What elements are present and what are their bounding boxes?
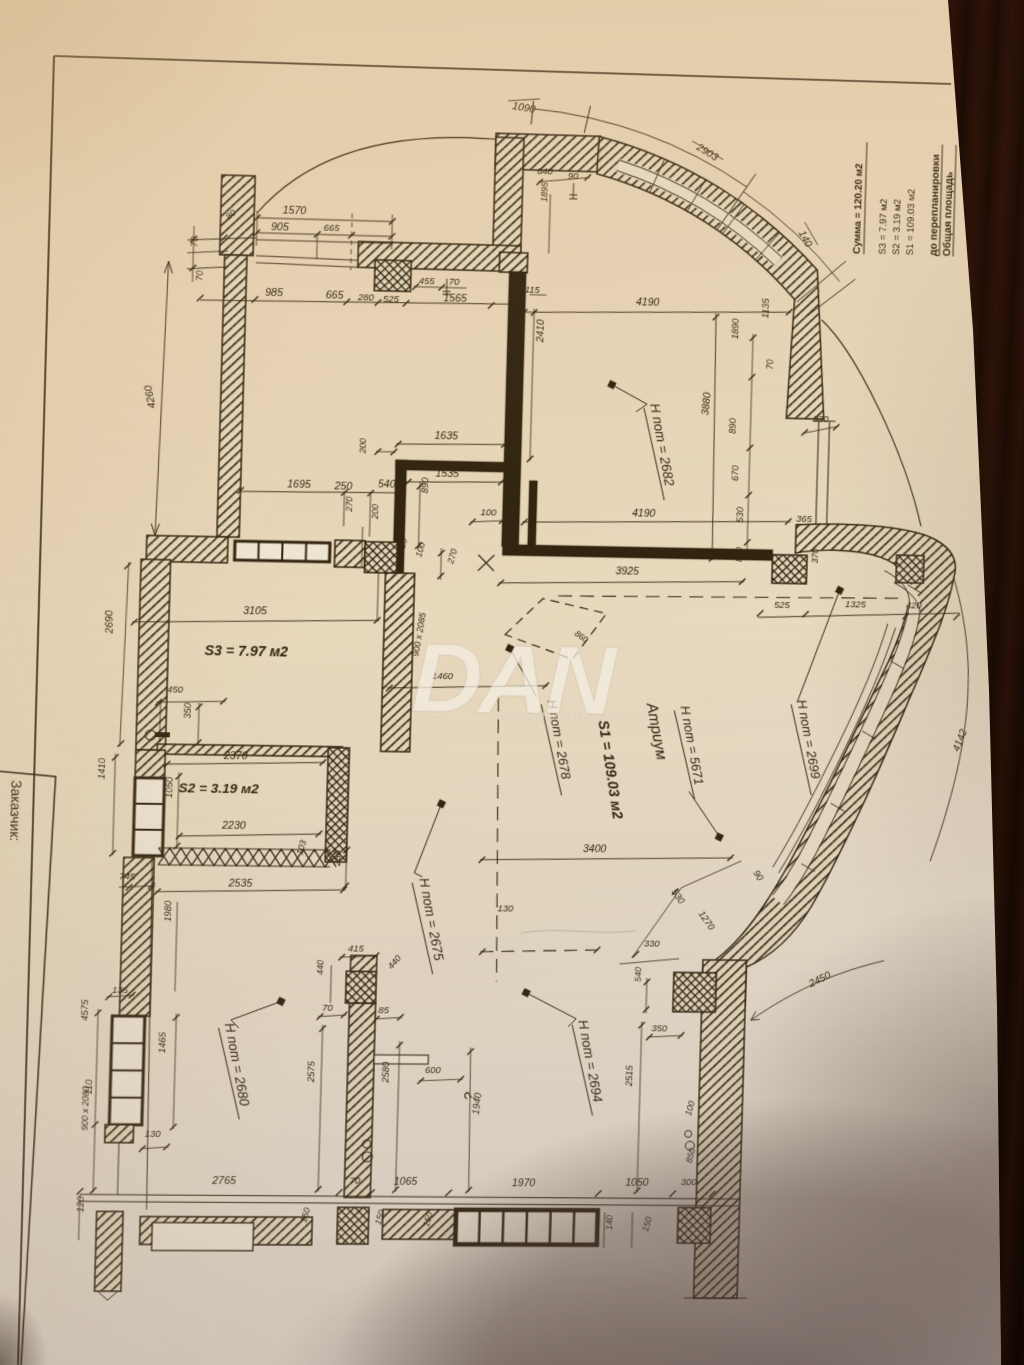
svg-text:270: 270 bbox=[445, 548, 459, 566]
svg-text:420: 420 bbox=[906, 601, 922, 612]
svg-text:S1 = 109.03 м2: S1 = 109.03 м2 bbox=[905, 188, 918, 255]
svg-text:70: 70 bbox=[190, 236, 201, 247]
svg-text:1065: 1065 bbox=[394, 1176, 418, 1188]
svg-text:1050: 1050 bbox=[164, 776, 176, 798]
svg-text:250: 250 bbox=[333, 481, 352, 493]
svg-text:890: 890 bbox=[420, 477, 431, 494]
svg-text:100: 100 bbox=[414, 541, 428, 558]
svg-text:120: 120 bbox=[75, 1196, 87, 1212]
svg-text:4575: 4575 bbox=[80, 999, 92, 1021]
svg-text:1270: 1270 bbox=[696, 909, 717, 933]
svg-text:S3 = 7.97 м2: S3 = 7.97 м2 bbox=[204, 643, 288, 660]
svg-text:4142: 4142 bbox=[951, 728, 970, 754]
svg-text:2450: 2450 bbox=[806, 969, 833, 990]
svg-text:265: 265 bbox=[332, 850, 343, 867]
svg-text:1940: 1940 bbox=[471, 1092, 484, 1115]
svg-text:745: 745 bbox=[119, 871, 136, 882]
svg-text:140: 140 bbox=[796, 229, 815, 250]
svg-text:200: 200 bbox=[370, 504, 380, 520]
svg-text:1465: 1465 bbox=[157, 1032, 169, 1054]
svg-text:440: 440 bbox=[315, 960, 325, 975]
svg-text:365: 365 bbox=[796, 514, 813, 525]
svg-text:Н пот = 2680: Н пот = 2680 bbox=[222, 1021, 252, 1107]
svg-text:1570: 1570 bbox=[282, 205, 306, 217]
svg-text:130: 130 bbox=[497, 904, 514, 915]
svg-text:540: 540 bbox=[633, 967, 643, 982]
svg-text:1535: 1535 bbox=[435, 468, 459, 480]
svg-text:115: 115 bbox=[525, 285, 541, 296]
svg-text:900 х 2080: 900 х 2080 bbox=[80, 1086, 91, 1130]
svg-text:S2 = 3.19 м2: S2 = 3.19 м2 bbox=[178, 780, 259, 796]
svg-text:540: 540 bbox=[378, 479, 396, 491]
svg-text:350: 350 bbox=[183, 702, 194, 719]
svg-text:330: 330 bbox=[813, 414, 830, 425]
svg-text:2370: 2370 bbox=[223, 750, 248, 762]
svg-text:1980: 1980 bbox=[163, 900, 175, 922]
svg-text:2410: 2410 bbox=[534, 319, 546, 343]
svg-text:2580: 2580 bbox=[381, 1061, 393, 1084]
svg-text:640: 640 bbox=[537, 166, 554, 177]
svg-text:1695: 1695 bbox=[287, 479, 311, 491]
svg-text:85: 85 bbox=[378, 1005, 390, 1016]
svg-text:1635: 1635 bbox=[434, 430, 458, 442]
svg-text:440: 440 bbox=[386, 953, 403, 971]
svg-text:2515: 2515 bbox=[624, 1065, 635, 1087]
svg-text:525: 525 bbox=[383, 294, 400, 305]
svg-text:530: 530 bbox=[669, 887, 687, 906]
svg-text:1895: 1895 bbox=[539, 181, 549, 202]
svg-text:2765: 2765 bbox=[211, 1175, 236, 1187]
svg-text:150: 150 bbox=[640, 1216, 654, 1233]
svg-text:665: 665 bbox=[323, 223, 340, 234]
svg-text:2690: 2690 bbox=[103, 610, 115, 635]
svg-text:130: 130 bbox=[144, 1129, 161, 1140]
svg-text:330: 330 bbox=[644, 939, 661, 950]
svg-text:4190: 4190 bbox=[636, 296, 660, 308]
svg-text:820: 820 bbox=[734, 547, 744, 562]
svg-text:2230: 2230 bbox=[221, 820, 246, 832]
svg-text:455: 455 bbox=[419, 276, 436, 287]
svg-text:4260: 4260 bbox=[142, 384, 158, 409]
svg-text:350: 350 bbox=[651, 1023, 668, 1034]
svg-text:3105: 3105 bbox=[243, 605, 267, 617]
svg-text:415: 415 bbox=[348, 944, 365, 955]
svg-text:90: 90 bbox=[568, 171, 579, 182]
svg-text:1970: 1970 bbox=[512, 1177, 536, 1189]
svg-text:S2 = 3.19 м2: S2 = 3.19 м2 bbox=[891, 198, 903, 255]
svg-text:665: 665 bbox=[326, 289, 344, 301]
svg-text:530: 530 bbox=[735, 506, 746, 522]
svg-text:200: 200 bbox=[358, 438, 368, 454]
svg-text:4190: 4190 bbox=[632, 508, 656, 520]
svg-text:985: 985 bbox=[265, 287, 283, 299]
svg-text:90: 90 bbox=[750, 869, 765, 884]
svg-text:1325: 1325 bbox=[845, 599, 867, 610]
svg-text:600: 600 bbox=[425, 1065, 442, 1076]
svg-text:70: 70 bbox=[765, 359, 776, 370]
svg-text:70: 70 bbox=[349, 1176, 361, 1187]
svg-text:280: 280 bbox=[357, 292, 375, 303]
svg-text:2535: 2535 bbox=[227, 878, 252, 890]
svg-text:450: 450 bbox=[167, 685, 184, 696]
svg-text:100: 100 bbox=[480, 507, 497, 518]
svg-text:905: 905 bbox=[271, 221, 289, 233]
svg-text:3925: 3925 bbox=[615, 566, 639, 578]
svg-text:2575: 2575 bbox=[306, 1060, 318, 1083]
svg-text:S3 = 7.97 м2: S3 = 7.97 м2 bbox=[878, 198, 890, 255]
svg-text:3400: 3400 bbox=[583, 843, 607, 855]
svg-text:1410: 1410 bbox=[96, 757, 108, 779]
svg-text:1135: 1135 bbox=[761, 298, 772, 319]
svg-text:1890: 1890 bbox=[730, 318, 741, 340]
svg-text:100: 100 bbox=[683, 1100, 697, 1117]
svg-text:525: 525 bbox=[774, 600, 791, 611]
svg-text:300: 300 bbox=[681, 1177, 698, 1188]
svg-text:270: 270 bbox=[344, 497, 354, 513]
svg-text:Атриум: Атриум bbox=[643, 701, 670, 762]
svg-text:Сумма = 120.20 м2: Сумма = 120.20 м2 bbox=[852, 163, 865, 254]
svg-text:670: 670 bbox=[730, 465, 741, 481]
svg-text:3880: 3880 bbox=[700, 392, 714, 416]
svg-text:1090: 1090 bbox=[511, 100, 536, 115]
svg-text:НЕДВИЖИМОСТЬ: НЕДВИЖИМОСТЬ bbox=[493, 711, 630, 725]
svg-text:70: 70 bbox=[195, 270, 206, 281]
svg-text:Заказчик:: Заказчик: bbox=[6, 780, 24, 842]
svg-text:70: 70 bbox=[322, 1003, 334, 1014]
svg-text:370: 370 bbox=[810, 549, 820, 564]
svg-text:140: 140 bbox=[604, 1215, 614, 1230]
svg-text:70: 70 bbox=[449, 277, 461, 288]
svg-text:890: 890 bbox=[728, 417, 739, 433]
svg-text:135: 135 bbox=[112, 985, 129, 996]
